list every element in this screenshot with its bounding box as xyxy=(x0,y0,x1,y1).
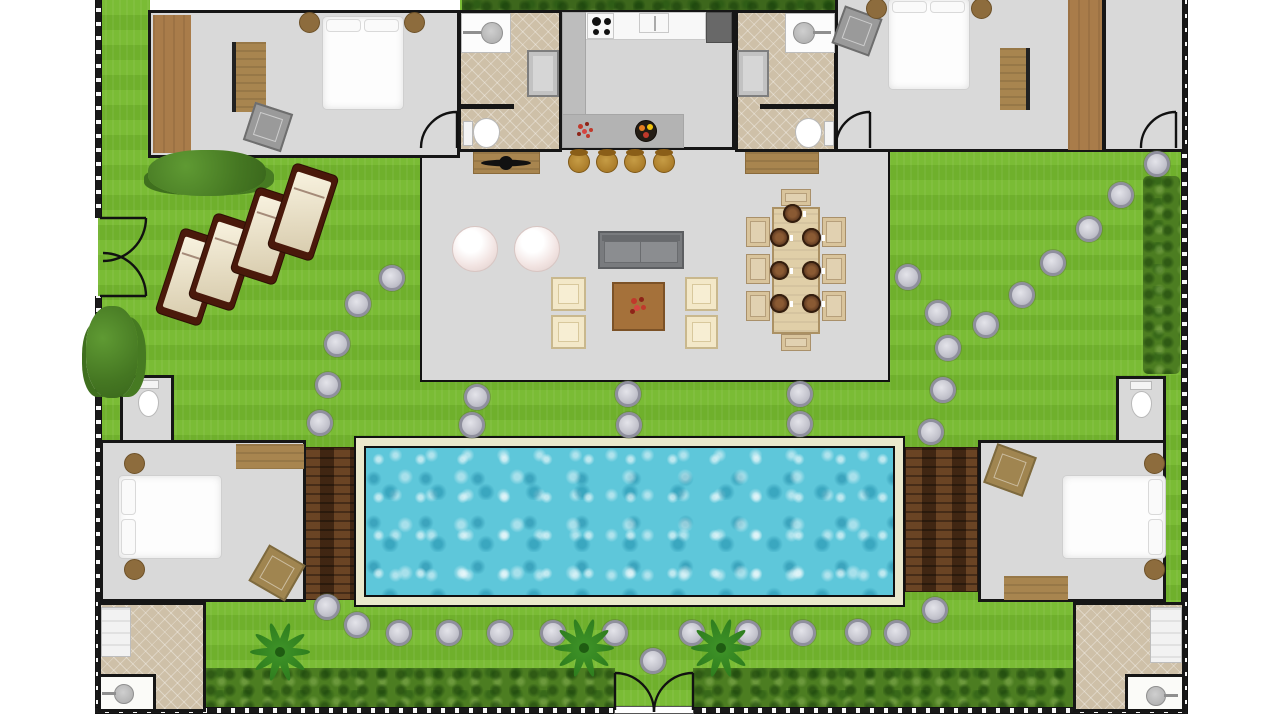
sofa-cushion xyxy=(640,241,678,263)
villa-floor-plan xyxy=(0,0,1280,720)
stepping-stone[interactable] xyxy=(307,410,333,436)
palm-leaf xyxy=(554,644,614,653)
stepping-stone[interactable] xyxy=(935,335,961,361)
place-setting xyxy=(770,228,789,247)
place-setting xyxy=(770,294,789,313)
pillow xyxy=(326,19,361,32)
bathroom-partition xyxy=(461,104,514,109)
place-setting xyxy=(770,261,789,280)
bar-stool[interactable] xyxy=(653,151,675,173)
faucet xyxy=(813,31,831,34)
stepping-stone[interactable] xyxy=(459,412,485,438)
sofa-cushion xyxy=(604,241,642,263)
pillow xyxy=(364,19,399,32)
dining-chair[interactable] xyxy=(781,334,811,351)
burner xyxy=(592,17,601,26)
stepping-stone[interactable] xyxy=(922,597,948,623)
pillow xyxy=(1148,479,1163,515)
stepping-stone[interactable] xyxy=(615,381,641,407)
sink-divider xyxy=(654,16,656,31)
pillow xyxy=(121,519,136,555)
pillow xyxy=(121,479,136,515)
stepping-stone[interactable] xyxy=(925,300,951,326)
sink-basin[interactable] xyxy=(481,22,503,44)
bar-stool[interactable] xyxy=(568,151,590,173)
dining-chair[interactable] xyxy=(822,217,846,247)
desk-top-left[interactable] xyxy=(232,42,266,112)
bar-stool[interactable] xyxy=(624,151,646,173)
bar-stool[interactable] xyxy=(596,151,618,173)
armchair[interactable] xyxy=(551,277,586,311)
sink-basin[interactable] xyxy=(114,684,134,704)
fruit-bowl xyxy=(635,120,657,142)
nightstand[interactable] xyxy=(1144,559,1165,580)
dining-chair[interactable] xyxy=(822,254,846,284)
nightstand[interactable] xyxy=(124,559,145,580)
hedge-right-column xyxy=(1143,176,1180,374)
armchair[interactable] xyxy=(685,277,718,311)
desk-top-right[interactable] xyxy=(1000,48,1030,110)
bathroom-partition xyxy=(760,104,835,109)
toilet-tank xyxy=(824,121,834,146)
shower-tray[interactable] xyxy=(737,50,769,97)
sink-basin[interactable] xyxy=(793,22,815,44)
nightstand[interactable] xyxy=(124,453,145,474)
stepping-stone[interactable] xyxy=(1040,250,1066,276)
place-setting xyxy=(783,204,802,223)
pillow xyxy=(1148,519,1163,555)
faucet xyxy=(102,692,116,695)
dining-chair[interactable] xyxy=(746,217,770,247)
stepping-stone[interactable] xyxy=(787,411,813,437)
garden-bush xyxy=(148,150,266,196)
armchair[interactable] xyxy=(551,315,586,349)
palm-plant xyxy=(551,615,617,681)
nightstand[interactable] xyxy=(404,12,425,33)
pool-deck-left xyxy=(303,447,355,600)
stepping-stone[interactable] xyxy=(884,620,910,646)
bed-top-right[interactable] xyxy=(888,0,970,90)
bean-bag[interactable] xyxy=(452,226,498,272)
stepping-stone[interactable] xyxy=(386,620,412,646)
entry-deck-left xyxy=(473,151,540,174)
stepping-stone[interactable] xyxy=(324,331,350,357)
armchair[interactable] xyxy=(685,315,718,349)
stepping-stone[interactable] xyxy=(464,384,490,410)
bean-bag[interactable] xyxy=(514,226,560,272)
stepping-stone[interactable] xyxy=(918,419,944,445)
stepping-stone[interactable] xyxy=(790,620,816,646)
stepping-stone[interactable] xyxy=(487,620,513,646)
cabinet[interactable] xyxy=(101,607,131,657)
garden-bush xyxy=(86,306,138,398)
stepping-stone[interactable] xyxy=(895,264,921,290)
palm-plant xyxy=(247,619,313,685)
burner xyxy=(604,29,610,35)
flower-vase xyxy=(576,122,596,139)
nightstand[interactable] xyxy=(299,12,320,33)
gate-threshold xyxy=(614,706,694,714)
burner xyxy=(593,29,599,35)
place-setting xyxy=(802,261,821,280)
faucet xyxy=(463,31,481,34)
stepping-stone[interactable] xyxy=(344,612,370,638)
stepping-stone[interactable] xyxy=(1076,216,1102,242)
palm-leaf xyxy=(250,648,310,657)
dining-chair[interactable] xyxy=(781,189,811,206)
stepping-stone[interactable] xyxy=(640,648,666,674)
stepping-stone[interactable] xyxy=(1108,182,1134,208)
stepping-stone[interactable] xyxy=(1009,282,1035,308)
stepping-stone[interactable] xyxy=(315,372,341,398)
pillow xyxy=(892,1,927,13)
toilet-tank xyxy=(463,121,473,146)
pillow xyxy=(930,1,965,13)
faucet xyxy=(1164,694,1178,697)
desk-bottom-left[interactable] xyxy=(236,444,304,469)
stepping-stone[interactable] xyxy=(787,381,813,407)
stepping-stone[interactable] xyxy=(314,594,340,620)
entry-room-top-right xyxy=(1103,0,1185,152)
entry-deck-right xyxy=(745,151,819,174)
shower-tray[interactable] xyxy=(527,50,559,97)
stepping-stone[interactable] xyxy=(345,291,371,317)
kitchen-island-side xyxy=(562,12,586,118)
nightstand[interactable] xyxy=(1144,453,1165,474)
stove[interactable] xyxy=(587,13,614,39)
place-setting xyxy=(802,294,821,313)
pool-deck-right xyxy=(905,447,978,592)
palm-leaf xyxy=(691,644,751,653)
dining-chair[interactable] xyxy=(822,291,846,321)
stepping-stone[interactable] xyxy=(930,377,956,403)
palm-plant xyxy=(688,615,754,681)
place-setting xyxy=(802,228,821,247)
wardrobe-top-right[interactable] xyxy=(1068,0,1102,150)
kitchen-sink[interactable] xyxy=(639,13,669,33)
cabinet[interactable] xyxy=(1150,607,1182,663)
table-flowers xyxy=(628,296,650,318)
stepping-stone[interactable] xyxy=(1144,151,1170,177)
stepping-stone[interactable] xyxy=(436,620,462,646)
sink-basin[interactable] xyxy=(1146,686,1166,706)
stepping-stone[interactable] xyxy=(973,312,999,338)
fridge[interactable] xyxy=(706,12,732,43)
boundary-wall-left-upper xyxy=(95,0,102,218)
sofa[interactable] xyxy=(598,231,684,269)
burner xyxy=(604,18,611,25)
wardrobe-top-left[interactable] xyxy=(153,15,191,153)
toilet-tank xyxy=(1130,381,1152,390)
swimming-pool xyxy=(364,446,895,597)
stepping-stone[interactable] xyxy=(379,265,405,291)
dining-chair[interactable] xyxy=(746,291,770,321)
desk-bottom-right[interactable] xyxy=(1004,576,1068,600)
stepping-stone[interactable] xyxy=(616,412,642,438)
stepping-stone[interactable] xyxy=(845,619,871,645)
dining-chair[interactable] xyxy=(746,254,770,284)
toilet-tank xyxy=(137,380,159,389)
